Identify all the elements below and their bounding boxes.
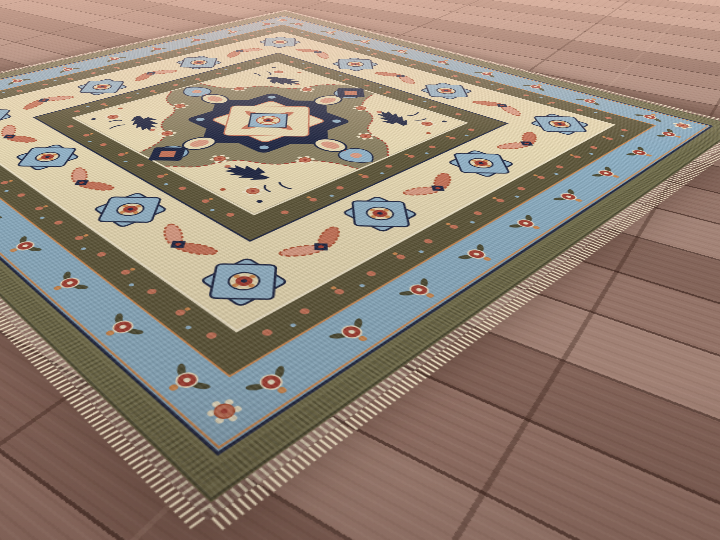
photo-frame <box>0 0 720 540</box>
scene-3d <box>0 0 720 540</box>
